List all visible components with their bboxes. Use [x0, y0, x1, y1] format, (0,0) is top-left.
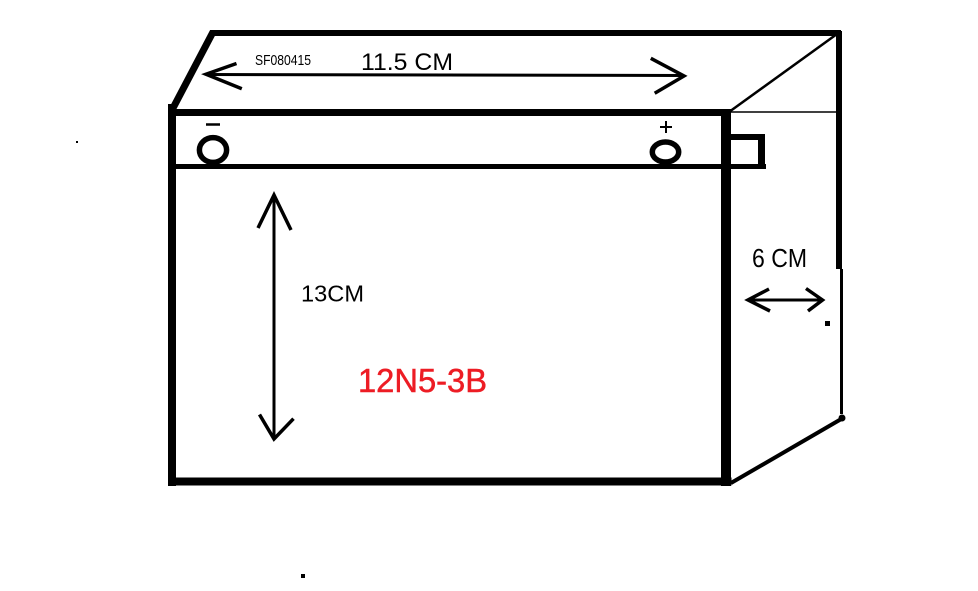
svg-text:12N5-3B: 12N5-3B: [358, 362, 487, 399]
svg-text:11.5 CM: 11.5 CM: [361, 49, 453, 76]
svg-text:SF080415: SF080415: [255, 52, 311, 69]
svg-text:6 CM: 6 CM: [752, 245, 807, 273]
svg-text:13CM: 13CM: [301, 281, 364, 307]
